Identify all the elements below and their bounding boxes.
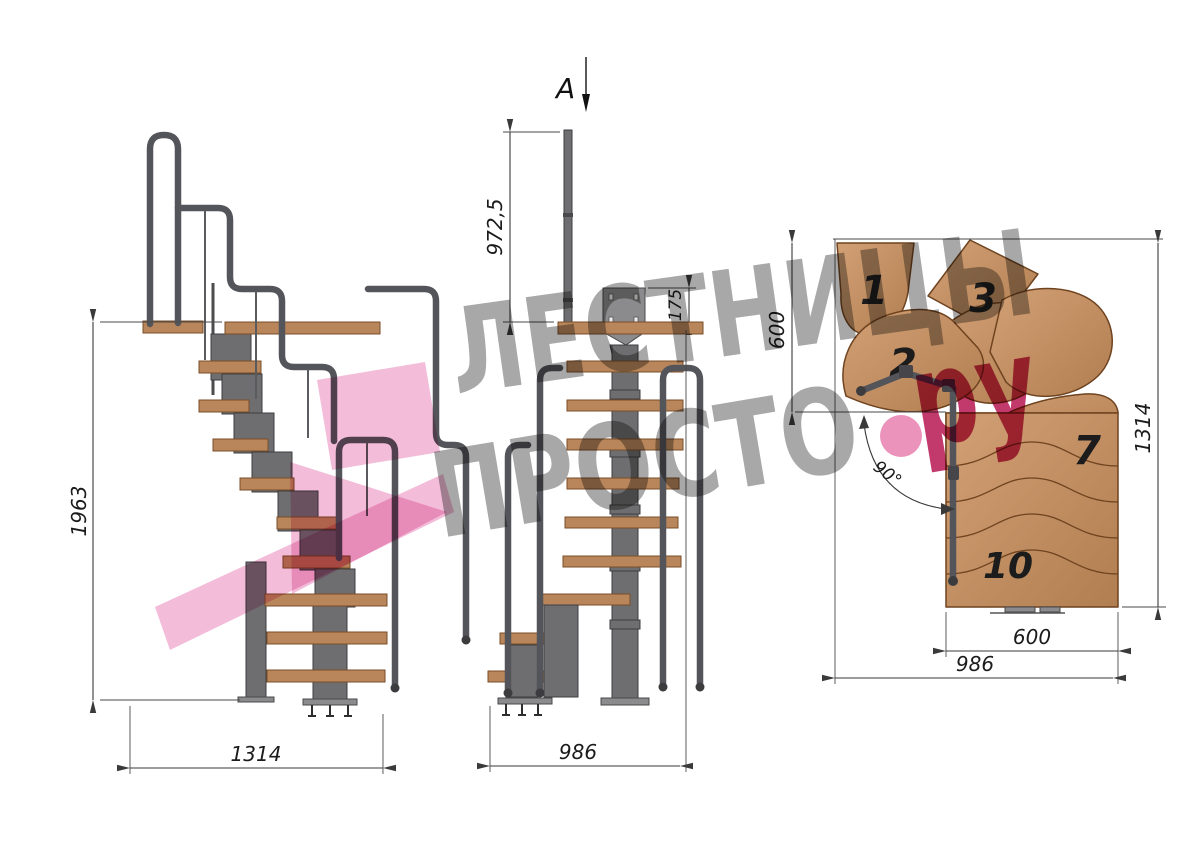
rail-end-cap	[948, 576, 958, 586]
anchor-bolts	[502, 704, 542, 716]
rail-end-cap	[696, 683, 705, 692]
base-plate	[303, 699, 357, 705]
dim-flight-width: 600	[1013, 625, 1051, 649]
dim-total-width: 986	[956, 652, 994, 676]
dim-front-width: 986	[559, 740, 597, 764]
rail-end-cap	[391, 684, 400, 693]
handrail-loop	[150, 135, 178, 324]
arc-arrowhead	[859, 415, 869, 429]
rail-end-cap	[462, 636, 471, 645]
section-arrow: A	[554, 57, 590, 112]
drawing-canvas: 1963 1314 A 972,5	[0, 0, 1200, 849]
rail-end-cap	[504, 689, 513, 698]
rail-end-cap	[856, 386, 866, 396]
section-arrowhead	[582, 94, 590, 112]
column-base	[601, 698, 649, 705]
tread	[225, 322, 380, 334]
dim-post-height: 972,5	[483, 198, 507, 255]
tread-number-10: 10	[983, 546, 1033, 587]
watermark: ЛЕСТНИЦЫ ПРОСТО ру	[155, 203, 1048, 650]
base-plate	[498, 698, 552, 704]
tread-number-7: 7	[1073, 428, 1101, 474]
tread	[267, 670, 385, 682]
tread	[213, 439, 268, 451]
tread	[199, 400, 249, 412]
watermark-shape-arrow	[290, 462, 447, 594]
section-label: A	[554, 72, 575, 105]
anchor-bolts	[308, 705, 352, 717]
dim-total-depth: 1314	[1131, 403, 1155, 454]
tread	[540, 594, 630, 605]
tread	[265, 594, 387, 606]
base-plate	[238, 697, 274, 702]
watermark-suffix: ру	[900, 307, 1048, 478]
post-joint	[563, 213, 573, 217]
plan-base-tabs	[990, 607, 1065, 613]
tread	[199, 361, 261, 373]
tread	[240, 478, 294, 490]
rail-end-cap	[536, 689, 545, 698]
rail-end-cap	[659, 683, 668, 692]
staircase-drawing: 1963 1314 A 972,5	[0, 0, 1200, 849]
watermark-shape-block	[317, 362, 440, 470]
tread	[267, 632, 387, 644]
bottom-column	[313, 606, 347, 700]
dim-width: 1314	[231, 742, 282, 766]
dim-height: 1963	[67, 486, 91, 537]
